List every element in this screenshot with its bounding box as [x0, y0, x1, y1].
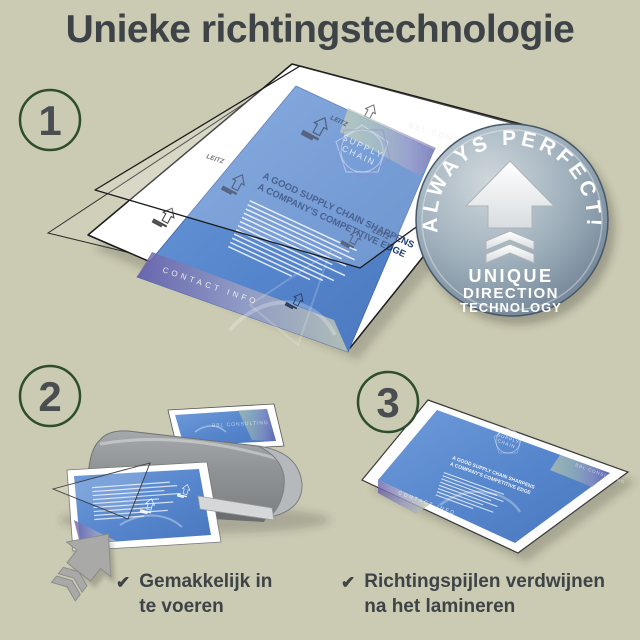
caption-easy-feed: ✔ Gemakkelijk in te voeren — [116, 570, 272, 619]
step-3-marker: 3 — [358, 372, 418, 432]
step-3-illustration: SUPPLY CHAIN A GOOD SUPPLY CHAIN SHARPEN… — [362, 400, 636, 562]
illustration-canvas: LEITZ BBL CONSULTING — [0, 0, 640, 640]
product-infographic: Unieke richtingstechnologie — [0, 0, 640, 640]
step-1-marker: 1 — [20, 90, 80, 150]
caption-arrows-disappear: ✔ Richtingspijlen verdwijnen na het lami… — [341, 570, 605, 619]
always-perfect-badge: ALWAYS PERFECT! UNIQUE DIRECTION TECHNOL… — [416, 124, 615, 325]
checkmark-icon: ✔ — [341, 570, 355, 619]
step-2-number: 2 — [38, 373, 61, 420]
checkmark-icon: ✔ — [116, 570, 130, 619]
step-2-marker: 2 — [20, 366, 80, 426]
svg-text:TECHNOLOGY: TECHNOLOGY — [460, 300, 562, 315]
badge-caption: UNIQUE DIRECTION TECHNOLOGY — [460, 266, 562, 315]
caption-easy-feed-text: Gemakkelijk in te voeren — [139, 570, 272, 619]
step-3-number: 3 — [376, 379, 399, 426]
svg-text:UNIQUE: UNIQUE — [468, 266, 553, 286]
caption-arrows-disappear-text: Richtingspijlen verdwijnen na het lamine… — [364, 570, 605, 619]
step-1-number: 1 — [38, 97, 61, 144]
